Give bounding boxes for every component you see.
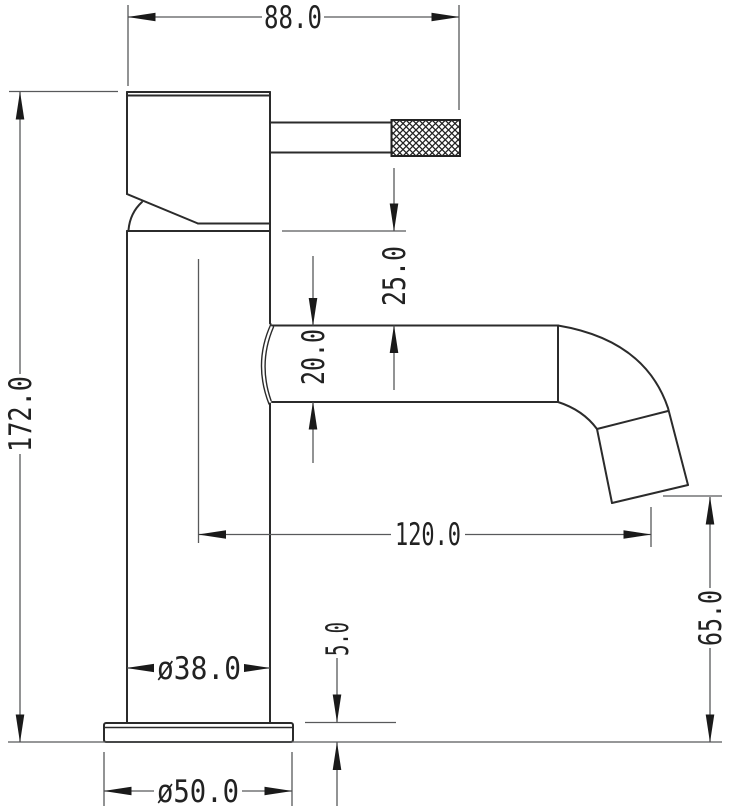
faucet-dimension-drawing: 88.0 172.0 25.0 20.0 120.0 65.0 5.0: [0, 0, 731, 810]
dim-label-top-width: 88.0: [264, 0, 322, 36]
base-plate: [104, 723, 293, 742]
knurled-grip: [392, 120, 461, 156]
spout: [272, 326, 688, 504]
dimension-lines: [8, 5, 722, 806]
body-column: [127, 231, 274, 723]
dim-label-outlet-height: 65.0: [693, 590, 729, 646]
dim-label-spout-reach: 120.0: [395, 517, 461, 553]
faucet-outline: [104, 92, 688, 742]
dim-label-body-diameter: ø38.0: [157, 651, 241, 687]
handle-lever-rod: [270, 123, 392, 153]
dim-label-overall-height: 172.0: [3, 376, 39, 452]
dim-label-base-thickness: 5.0: [320, 622, 356, 656]
handle-head-body: [127, 92, 270, 231]
technical-drawing-page: 88.0 172.0 25.0 20.0 120.0 65.0 5.0: [0, 0, 731, 810]
dim-label-handle-to-spout: 25.0: [377, 246, 413, 306]
dim-label-base-diameter: ø50.0: [157, 774, 239, 810]
dim-label-spout-tube: 20.0: [296, 329, 332, 385]
